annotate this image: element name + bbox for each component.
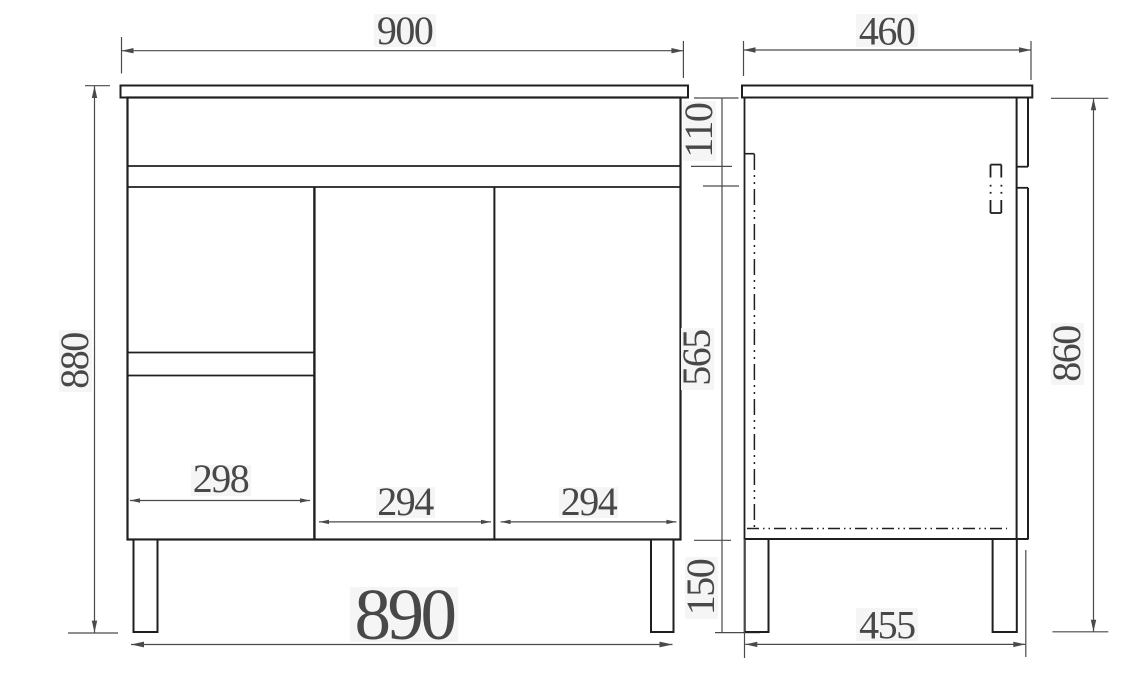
svg-text:565: 565 [674,330,719,386]
svg-text:860: 860 [1044,326,1089,382]
svg-text:890: 890 [355,574,455,655]
svg-text:110: 110 [676,103,721,158]
svg-text:294: 294 [377,479,434,524]
svg-text:298: 298 [193,456,249,501]
svg-text:455: 455 [859,603,915,648]
svg-text:150: 150 [678,559,723,615]
svg-text:880: 880 [52,333,97,389]
svg-text:294: 294 [561,479,618,524]
svg-text:460: 460 [859,9,915,54]
svg-text:900: 900 [377,8,433,53]
